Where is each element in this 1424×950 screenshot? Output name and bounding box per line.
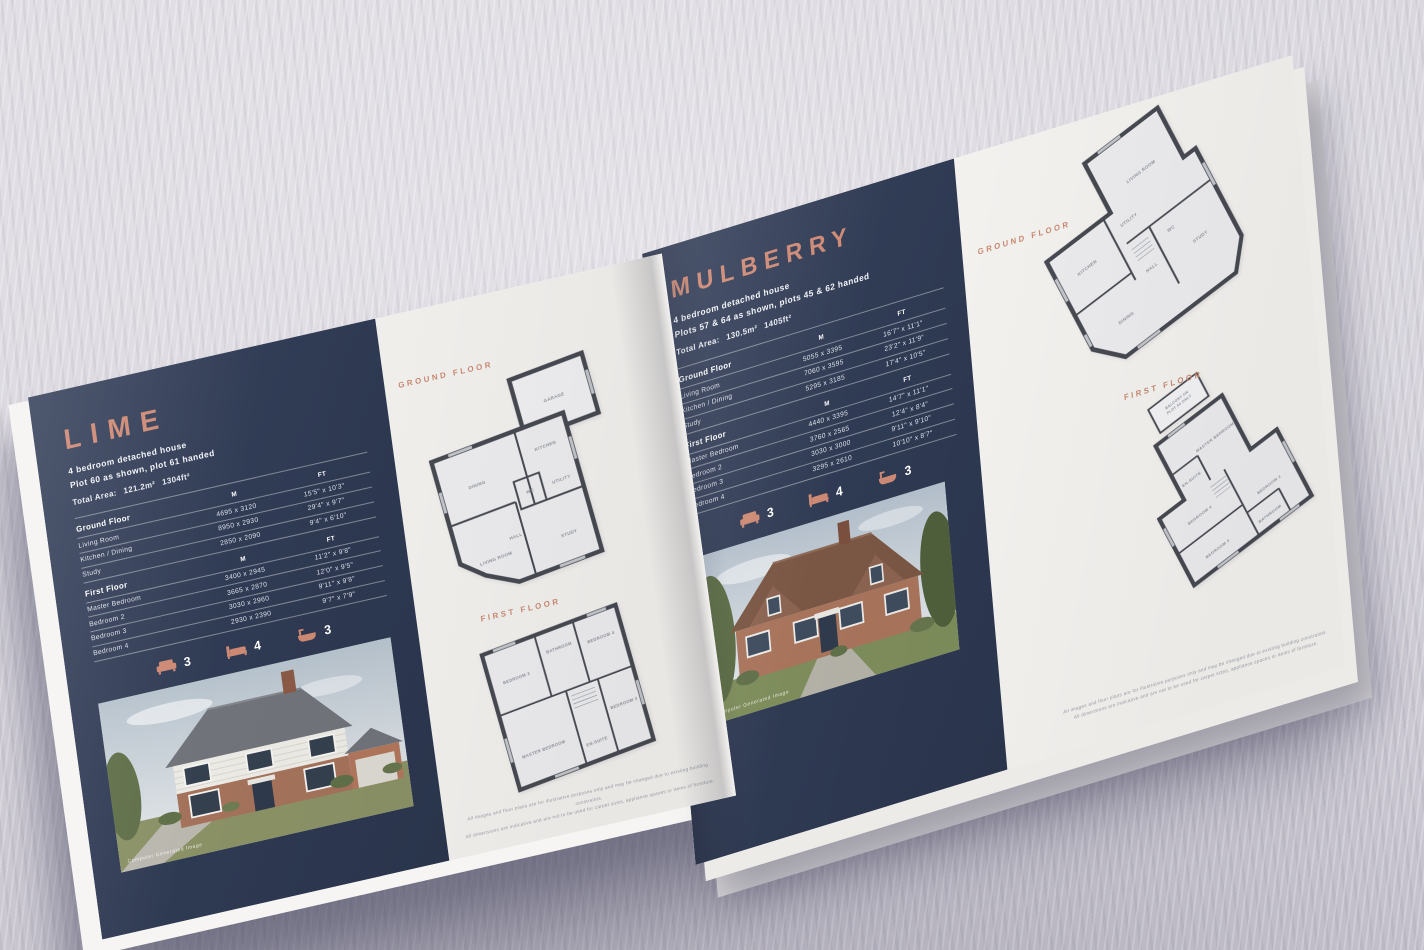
desk-background: GROUND FLOOR LIVING ROOM UTILITY KITCHEN… — [0, 0, 1424, 950]
house-info-panel: LIME 4 bedroom detached house Plot 60 as… — [28, 319, 449, 940]
sofa-icon — [155, 657, 178, 676]
receptions-stat: 3 — [155, 654, 192, 676]
bathrooms-stat: 3 — [876, 462, 912, 487]
receptions-stat: 3 — [739, 504, 775, 529]
bed-icon — [225, 641, 248, 660]
floorplan-panel: GROUND FLOOR LIVING ROOM UTILITY KITCHEN… — [954, 55, 1346, 770]
bathrooms-stat: 3 — [295, 622, 332, 644]
sofa-icon — [739, 508, 761, 529]
bed-icon — [807, 487, 829, 508]
bath-icon — [876, 466, 898, 487]
bedrooms-stat: 4 — [807, 483, 843, 508]
bedrooms-stat: 4 — [225, 638, 262, 660]
bath-icon — [295, 625, 318, 644]
